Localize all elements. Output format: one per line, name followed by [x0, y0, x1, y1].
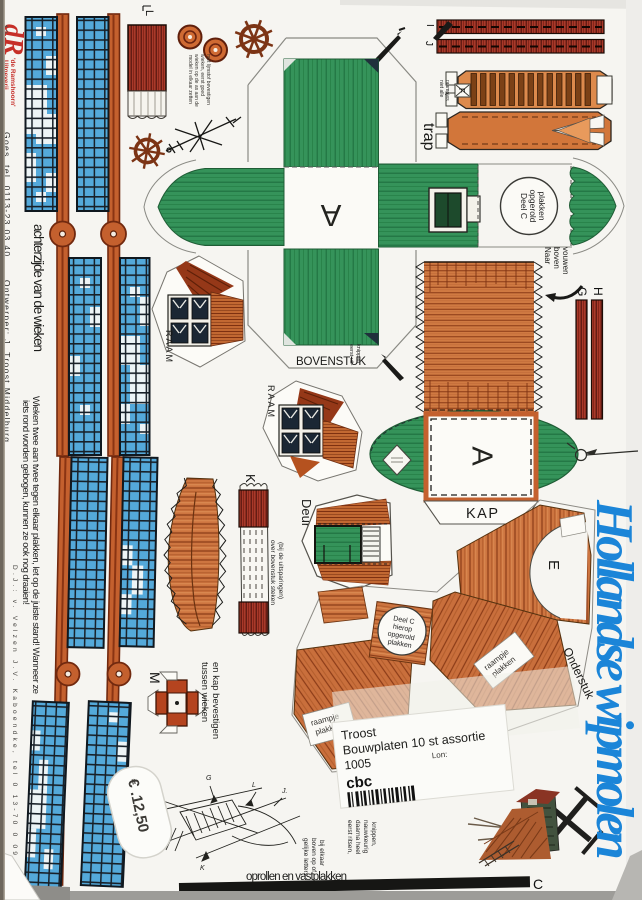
svg-text:model in elkaar zetten: model in elkaar zetten [187, 55, 193, 104]
svg-text:bij elkaar: bij elkaar [318, 840, 325, 867]
svg-text:'de Ramshoorn': 'de Ramshoorn' [9, 58, 16, 107]
svg-text:RAAM: RAAM [164, 330, 174, 364]
svg-text:eerst uit-: eerst uit- [348, 344, 354, 366]
svg-text:cbc: cbc [345, 773, 372, 793]
svg-text:iets rond worden gebogen, kunn: iets rond worden gebogen, kunnen ze ook … [20, 400, 31, 605]
svg-text:Deel C: Deel C [519, 193, 529, 219]
svg-text:eerst ritsen,: eerst ritsen, [346, 820, 353, 854]
svg-text:plakken: plakken [537, 191, 547, 221]
svg-text:H: H [591, 287, 605, 296]
svg-text:(bij de uitsparingen): (bij de uitsparingen) [277, 542, 284, 599]
svg-text:boven op of: boven op of [310, 838, 317, 872]
svg-text:J: J [423, 41, 434, 46]
svg-text:K: K [243, 474, 258, 483]
svg-text:daarna heel: daarna heel [354, 820, 361, 855]
svg-text:wieken, eerst goed: wieken, eerst goed [199, 54, 205, 96]
svg-text:trap: trap [420, 123, 437, 151]
svg-text:knippen,: knippen, [370, 822, 377, 847]
svg-text:knippen: knippen [355, 344, 361, 363]
svg-text:G: G [206, 775, 212, 782]
svg-text:wieken op de as aan de: wieken op de as aan de [193, 54, 199, 107]
svg-text:A: A [465, 446, 497, 466]
svg-text:nauwkeurig: nauwkeurig [362, 820, 369, 854]
svg-text:niet alle: niet alle [438, 80, 444, 97]
svg-text:KAP: KAP [466, 506, 500, 522]
svg-text:K: K [200, 865, 205, 872]
svg-text:met lijmstof bevestigen: met lijmstof bevestigen [205, 54, 211, 105]
svg-text:E: E [545, 560, 562, 570]
svg-text:F: F [457, 88, 466, 93]
svg-text:I: I [424, 24, 435, 27]
svg-text:A: A [320, 198, 341, 233]
svg-text:1005: 1005 [344, 756, 372, 773]
svg-text:RAAM: RAAM [266, 385, 276, 419]
svg-text:Lon:: Lon: [431, 750, 447, 761]
svg-text:C: C [533, 876, 543, 892]
svg-text:en kap bevestigen: en kap bevestigen [210, 662, 221, 739]
svg-text:opgerold: opgerold [528, 189, 538, 222]
svg-text:boven: boven [552, 247, 561, 269]
svg-text:tussen wieken: tussen wieken [199, 662, 210, 722]
svg-text:vouwen: vouwen [561, 247, 570, 275]
svg-text:raampjes: raampjes [444, 80, 450, 101]
svg-text:L: L [143, 10, 155, 16]
svg-text:L: L [252, 782, 256, 789]
svg-text:J.: J. [281, 788, 288, 795]
svg-text:Hollandse wipmolen: Hollandse wipmolen [585, 499, 642, 860]
svg-text:achterzijde van de wieken: achterzijde van de wieken [31, 224, 46, 352]
svg-text:Naar: Naar [543, 247, 552, 265]
svg-text:M: M [147, 672, 163, 684]
svg-text:over bovenstuk steken: over bovenstuk steken [269, 540, 276, 605]
